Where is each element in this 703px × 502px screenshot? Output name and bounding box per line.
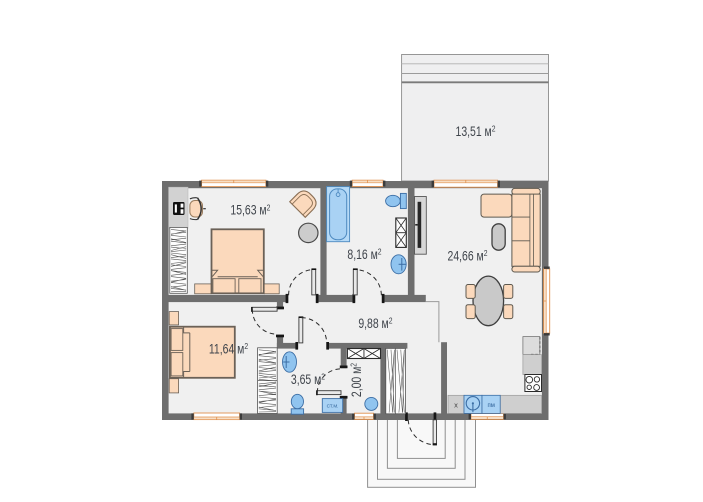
svg-text:2,00 м2: 2,00 м2 xyxy=(349,363,365,397)
svg-text:x: x xyxy=(454,401,458,410)
svg-text:13,51 м2: 13,51 м2 xyxy=(456,124,496,140)
svg-text:СТ.М.: СТ.М. xyxy=(327,404,339,409)
svg-text:15,63 м2: 15,63 м2 xyxy=(230,202,270,218)
svg-text:пм: пм xyxy=(488,403,495,409)
svg-text:3,65 м2: 3,65 м2 xyxy=(291,372,325,388)
svg-text:24,66 м2: 24,66 м2 xyxy=(448,248,488,264)
svg-text:9,88 м2: 9,88 м2 xyxy=(358,316,392,332)
svg-text:8,16 м2: 8,16 м2 xyxy=(347,247,381,263)
svg-text:11,64 м2: 11,64 м2 xyxy=(209,341,248,357)
